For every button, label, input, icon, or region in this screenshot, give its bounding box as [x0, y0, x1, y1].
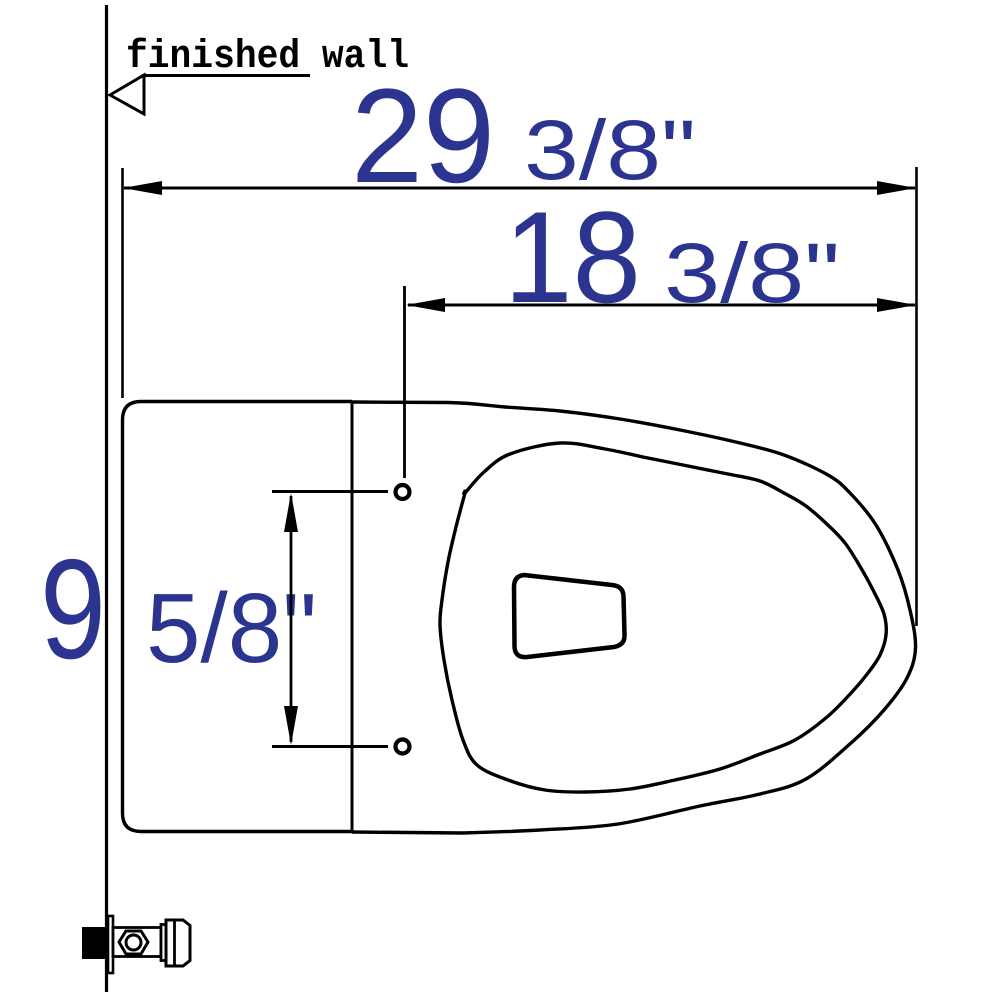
svg-text:3/8": 3/8": [524, 103, 696, 197]
svg-text:3/8": 3/8": [664, 226, 840, 320]
svg-text:29: 29: [351, 62, 495, 211]
svg-text:18: 18: [504, 184, 641, 330]
svg-text:9: 9: [40, 530, 106, 689]
